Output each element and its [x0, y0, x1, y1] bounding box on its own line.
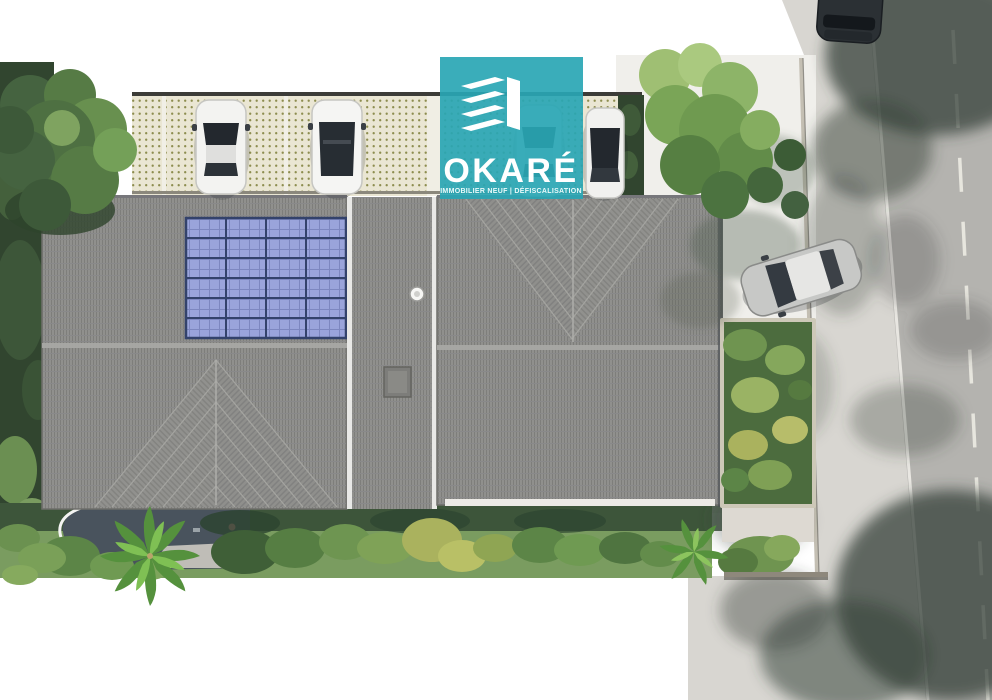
- brand-tagline: IMMOBILIER NEUF | DÉFISCALISATION: [440, 186, 582, 195]
- aerial-site-plan: OKARÉ IMMOBILIER NEUF | DÉFISCALISATION: [0, 0, 992, 700]
- parked-car-2: [308, 100, 366, 200]
- left-roof: [42, 195, 347, 509]
- palm-tree: [100, 506, 200, 606]
- roof-ridge: [437, 345, 722, 350]
- car-mirror: [308, 123, 313, 130]
- brand-title: OKARÉ: [443, 152, 578, 190]
- street-car: [816, 0, 884, 44]
- connector-roof: [347, 197, 437, 509]
- parked-car-4: [580, 108, 628, 201]
- solar-panels: [186, 218, 346, 338]
- car-mirror: [192, 124, 197, 131]
- garden-ornament: [193, 528, 200, 532]
- roof-hatch: [384, 367, 411, 397]
- brand-watermark: OKARÉ IMMOBILIER NEUF | DÉFISCALISATION: [440, 57, 583, 199]
- site-plan-canvas: OKARÉ IMMOBILIER NEUF | DÉFISCALISATION: [0, 0, 992, 700]
- roof-eave-white: [445, 499, 715, 506]
- roof-ridge: [42, 343, 347, 348]
- parking-divider: [427, 95, 441, 196]
- side-garden-bed: [720, 318, 816, 508]
- car-mirror: [361, 123, 366, 130]
- house-roofs: [42, 195, 723, 509]
- roof-seam: [347, 197, 352, 509]
- parked-car-1: [192, 100, 250, 200]
- parking-divider: [162, 95, 166, 196]
- garden-wall: [724, 572, 828, 580]
- roof-vent-cap: [414, 291, 420, 297]
- car-mirror: [245, 124, 250, 131]
- right-roof: [437, 195, 723, 507]
- parking-divider: [284, 95, 288, 196]
